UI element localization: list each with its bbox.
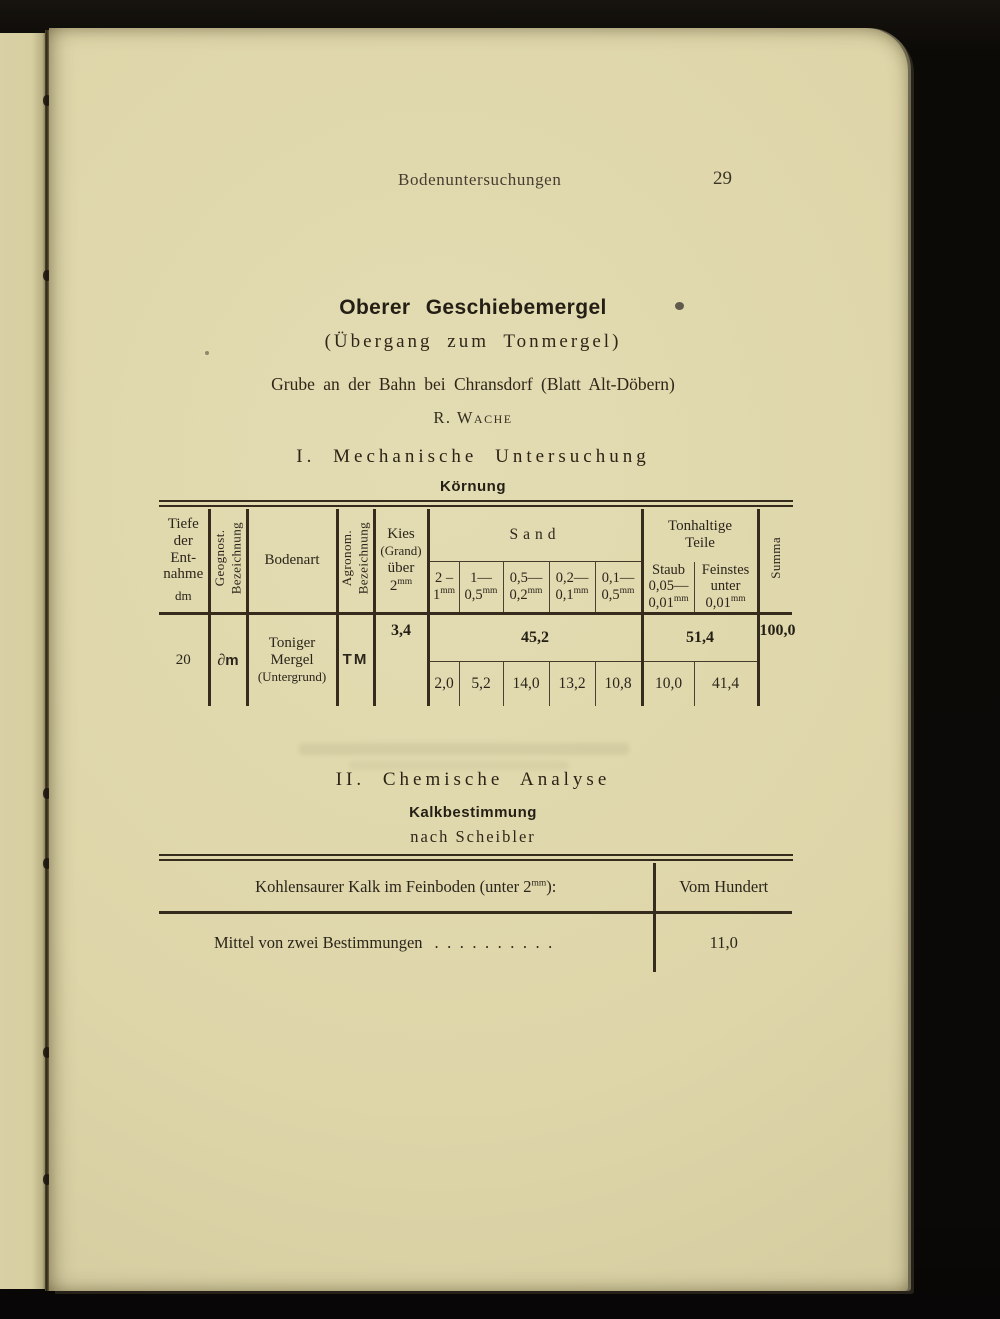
cell-sand-value: 13,2: [549, 662, 595, 707]
kalk-header-right: Vom Hundert: [654, 863, 792, 913]
cell-ton-total: 51,4: [642, 614, 758, 662]
cell-tiefe: 20: [159, 614, 209, 707]
kalk-header-left: Kohlensaurer Kalk im Feinboden (unter 2m…: [159, 863, 654, 913]
header-summa: Summa: [758, 509, 792, 614]
section-1-subheading: Körnung: [78, 478, 868, 495]
cell-sand-value: 2,0: [428, 662, 459, 707]
kalk-table: Kohlensaurer Kalk im Feinboden (unter 2m…: [159, 854, 793, 972]
header-group-tonhaltige: Tonhaltige Teile: [642, 509, 758, 562]
section-2-method: nach Scheibler: [78, 827, 868, 847]
cell-sand-total: 45,2: [428, 614, 642, 662]
header-staub: Staub 0,05— 0,01mm: [642, 562, 694, 614]
kalk-row-value: 11,0: [654, 913, 792, 973]
cell-feinstes-value: 41,4: [694, 662, 758, 707]
book-scan: Bodenuntersuchungen 29 Oberer Geschiebem…: [0, 0, 1000, 1319]
cell-kies: 3,4: [374, 614, 428, 707]
header-agronom: Agronom.Bezeichnung: [337, 509, 374, 614]
header-bodenart: Bodenart: [247, 509, 337, 614]
cell-bodenart: Toniger Mergel (Untergrund): [247, 614, 337, 707]
section-2-subheading: Kalkbestimmung: [78, 804, 868, 821]
section-2-heading: II. Chemische Analyse: [78, 769, 868, 791]
table-top-double-rule: [159, 854, 793, 861]
grain-size-table: Tiefe der Ent- nahme dm Geognost.Bezeich…: [159, 500, 793, 706]
header-geognost: Geognost.Bezeichnung: [209, 509, 247, 614]
author-name: R. Wache: [78, 408, 868, 428]
header-feinstes: Feinstes unter 0,01mm: [694, 562, 758, 614]
show-through-smudge: [299, 743, 629, 755]
cell-summa: 100,0: [758, 614, 792, 707]
header-sand-fraction: 0,2— 0,1mm: [549, 562, 595, 614]
adjacent-page-edge: [0, 33, 45, 1289]
cell-sand-value: 10,8: [595, 662, 642, 707]
header-sand-fraction: 0,5— 0,2mm: [503, 562, 549, 614]
header-group-sand: Sand: [428, 509, 642, 562]
page-number: 29: [713, 168, 732, 190]
page-title: Oberer Geschiebemergel: [78, 296, 868, 320]
header-sand-fraction: 0,1— 0,5mm: [595, 562, 642, 614]
table-top-double-rule: [159, 500, 793, 507]
section-1-heading: I. Mechanische Untersuchung: [78, 446, 868, 468]
cell-agronom: TM: [337, 614, 374, 707]
page-subtitle: (Übergang zum Tonmergel): [78, 331, 868, 353]
kalk-row-label: Mittel von zwei Bestimmungen..........: [159, 913, 654, 973]
cell-sand-value: 5,2: [459, 662, 503, 707]
location-line: Grube an der Bahn bei Chransdorf (Blatt …: [78, 374, 868, 395]
header-kies: Kies (Grand) über 2mm: [374, 509, 428, 614]
cell-geognost: ∂m: [209, 614, 247, 707]
running-head: Bodenuntersuchungen: [398, 170, 561, 190]
cell-sand-value: 14,0: [503, 662, 549, 707]
header-tiefe: Tiefe der Ent- nahme dm: [159, 509, 209, 614]
header-sand-fraction: 2 – 1mm: [428, 562, 459, 614]
page: Bodenuntersuchungen 29 Oberer Geschiebem…: [49, 28, 908, 1291]
cell-staub-value: 10,0: [642, 662, 694, 707]
header-sand-fraction: 1— 0,5mm: [459, 562, 503, 614]
